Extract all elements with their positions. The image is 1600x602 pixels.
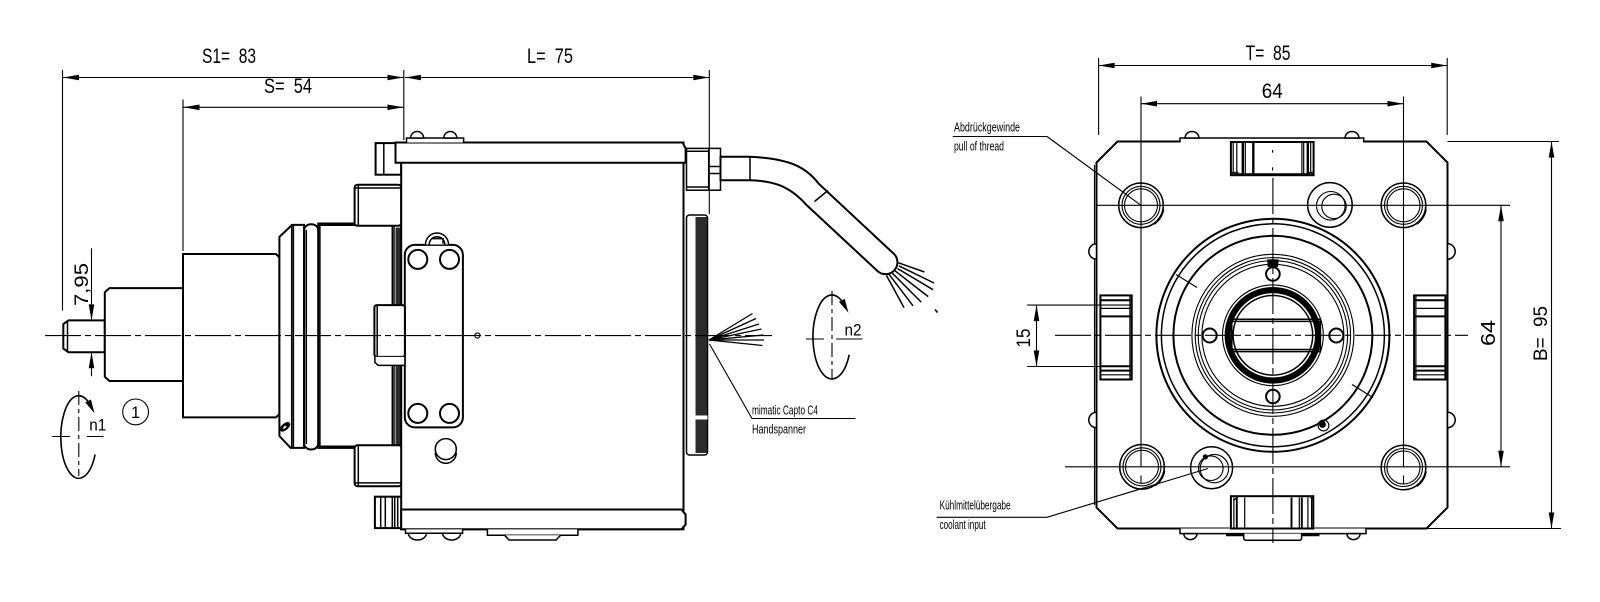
svg-text:B= 95: B= 95 [1531, 306, 1552, 361]
svg-text:n2: n2 [845, 321, 862, 340]
svg-text:T= 85: T= 85 [1246, 42, 1291, 65]
svg-text:7,95: 7,95 [72, 263, 93, 306]
svg-text:n1: n1 [89, 416, 106, 435]
svg-text:64: 64 [1262, 80, 1283, 103]
svg-text:S1= 83: S1= 83 [202, 45, 256, 68]
svg-text:Abdrückgewinde: Abdrückgewinde [954, 121, 1020, 135]
svg-text:mimatic Capto C4: mimatic Capto C4 [752, 404, 818, 418]
svg-text:64: 64 [1478, 320, 1500, 346]
svg-text:pull of thread: pull of thread [954, 140, 1004, 154]
svg-text:Kühlmittelübergabe: Kühlmittelübergabe [940, 499, 1011, 513]
svg-text:S= 54: S= 54 [264, 75, 312, 98]
svg-text:Handspanner: Handspanner [752, 423, 806, 437]
svg-text:15: 15 [1014, 329, 1035, 348]
svg-text:coolant input: coolant input [940, 518, 986, 532]
svg-text:1: 1 [131, 404, 140, 422]
svg-text:L= 75: L= 75 [527, 45, 573, 68]
